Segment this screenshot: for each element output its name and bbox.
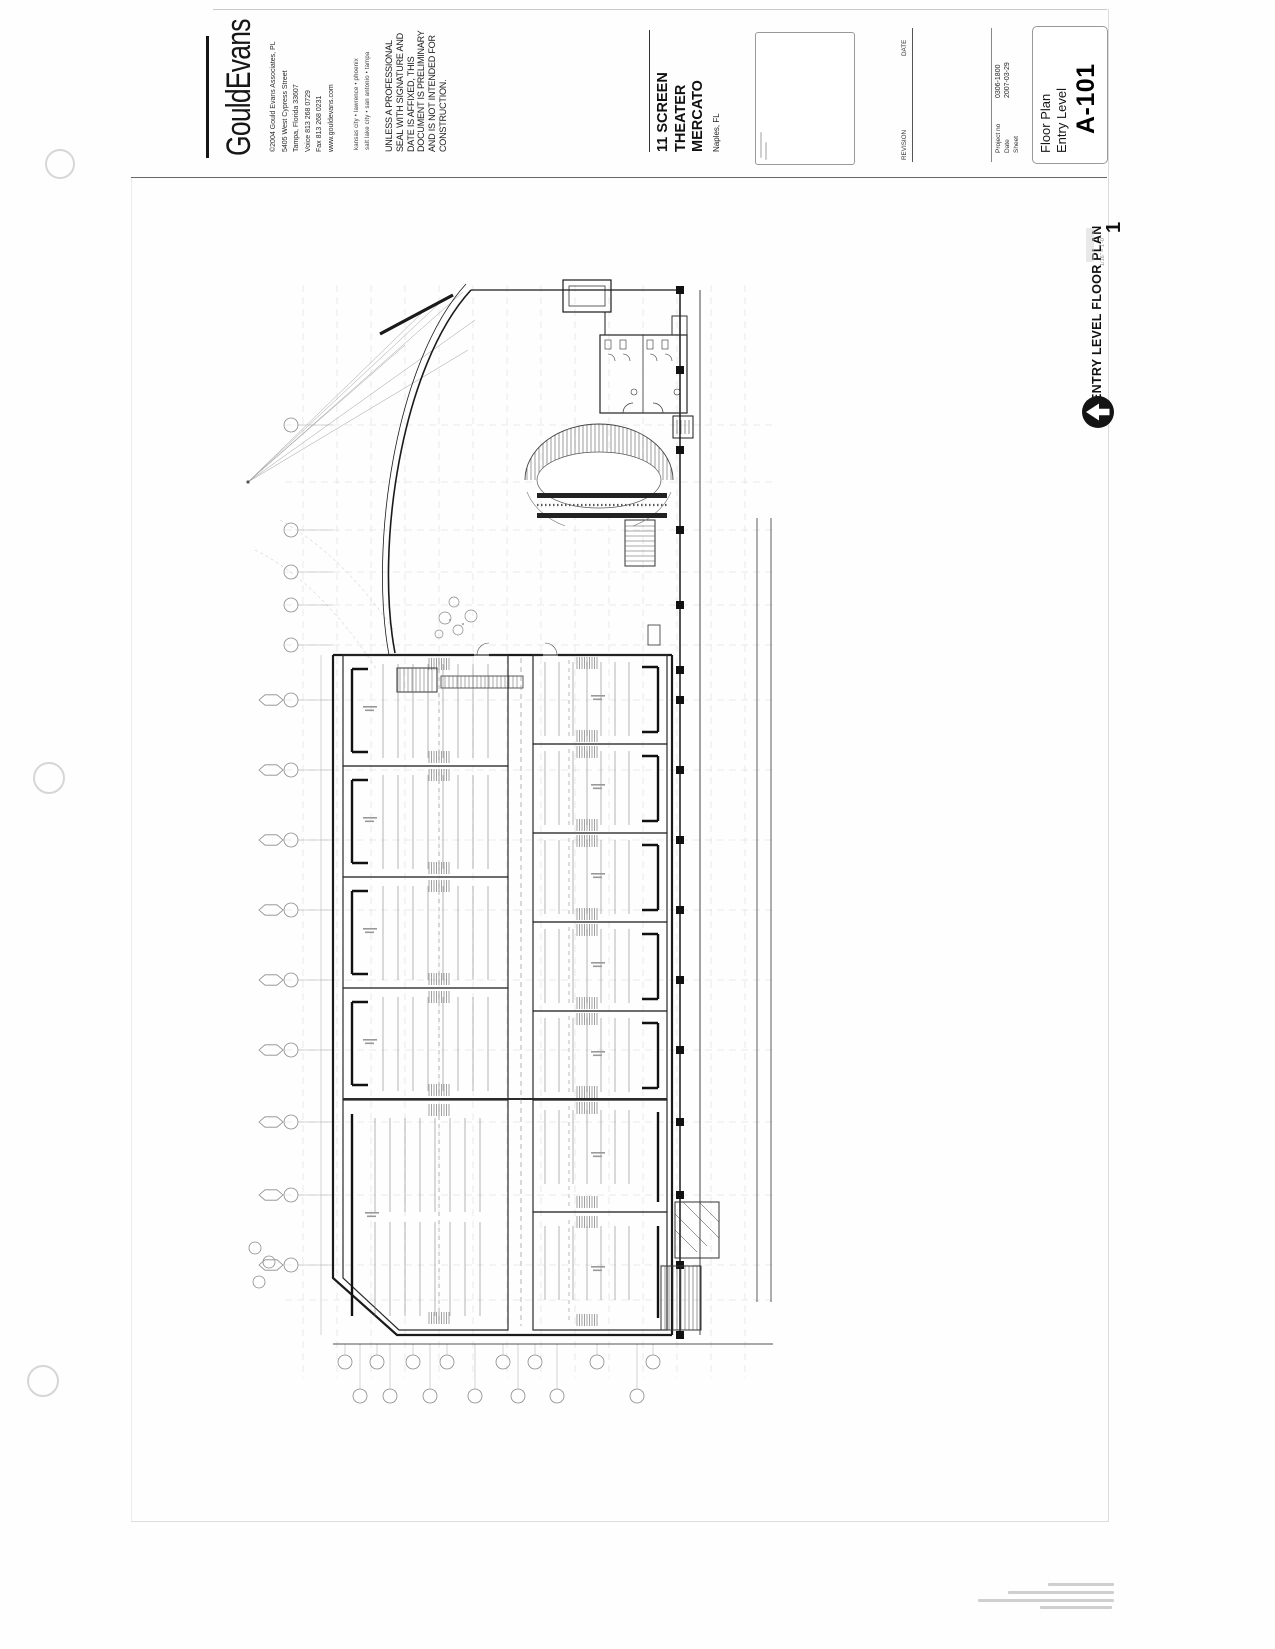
project-title-line: MERCATO [690, 28, 708, 152]
faint-scribble [765, 142, 767, 160]
titleblock-separator [649, 30, 650, 152]
punch-hole [33, 762, 65, 794]
address-line: 5405 West Cypress Street [280, 30, 292, 152]
address-line: Voice 813 268 0729 [303, 30, 315, 152]
project-title-line: THEATER [673, 28, 691, 152]
sheet-number: A-101 [1072, 36, 1101, 134]
offices-line: salt lake city • san antonio • tampa [363, 20, 374, 150]
project-no-label: Project no [995, 111, 1002, 153]
viewport-number: 1 [1103, 197, 1126, 233]
sheet-name: Floor Plan Entry Level [1038, 53, 1069, 153]
info-separator [991, 28, 992, 162]
exterior-walls [333, 280, 773, 1344]
north-arrow-icon [1079, 393, 1117, 431]
room-labels [363, 695, 605, 1271]
address-line: www.gouldevans.com [326, 30, 338, 152]
date-label: Date [1004, 111, 1011, 153]
firm-logo: GouldEvans [220, 16, 264, 156]
key-plan-box [755, 32, 855, 165]
firm-offices: kansas city • lawrence • phoenix salt la… [352, 20, 374, 150]
titleblock-top-hairline [213, 9, 1107, 10]
address-line: Fax 813 268 0231 [314, 30, 326, 152]
faint-stamp [1086, 228, 1094, 262]
address-line: Tampa, Florida 33607 [291, 30, 303, 152]
faint-scribble [760, 132, 762, 158]
sheet-name-line: Entry Level [1054, 53, 1070, 153]
sheet-border-line [131, 177, 1107, 178]
revision-rule [912, 28, 913, 162]
date-value: 2007-03-29 [1004, 52, 1012, 98]
project-title: 11 SCREEN THEATER MERCATO [655, 28, 708, 152]
offices-line: kansas city • lawrence • phoenix [352, 20, 363, 150]
preliminary-disclaimer: UNLESS A PROFESSIONAL SEAL WITH SIGNATUR… [384, 30, 449, 152]
firm-logo-text: GouldEvans [220, 19, 259, 156]
paper-bottom-edge [131, 1521, 1108, 1522]
firm-address: ©2004 Gould Evans Associates, PL 5405 We… [268, 30, 337, 152]
auditoriums [343, 655, 667, 1330]
restroom-block [600, 316, 687, 413]
sight-rays [246, 292, 475, 670]
project-title-line: 11 SCREEN [655, 28, 673, 152]
logo-rule [206, 36, 209, 158]
project-location: Naples, FL [712, 92, 721, 152]
paper-right-edge [1108, 9, 1109, 1522]
scale-note: 1/16" = 1'-0" [1100, 236, 1106, 266]
scanned-drawing-sheet: GouldEvans ©2004 Gould Evans Associates,… [0, 0, 1275, 1649]
concession-stand [525, 420, 673, 526]
date-header: DATE [901, 30, 908, 56]
floor-plan-drawing [225, 250, 805, 1450]
paper-left-edge [131, 178, 132, 1521]
punch-hole [45, 149, 75, 179]
punch-hole [27, 1365, 59, 1397]
address-line: ©2004 Gould Evans Associates, PL [268, 30, 280, 152]
grid-bubbles [249, 418, 660, 1403]
revision-header: REVISION [901, 126, 908, 160]
project-no-value: 0306-1800 [995, 52, 1003, 98]
service-blocks [661, 1202, 719, 1330]
sheet-label: Sheet [1013, 111, 1020, 153]
sheet-name-line: Floor Plan [1038, 53, 1054, 153]
grid-lines [285, 285, 777, 1378]
